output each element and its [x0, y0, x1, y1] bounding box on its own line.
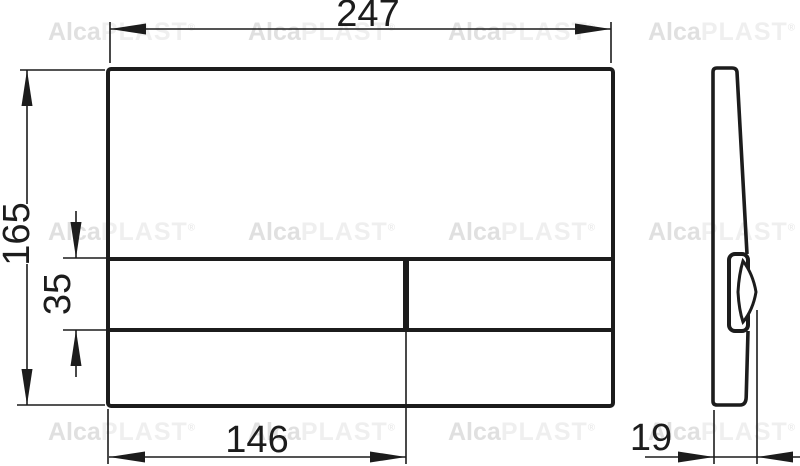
side-button-lens [738, 261, 756, 322]
arrowhead-down [71, 222, 82, 258]
arrowhead-bottom [22, 369, 33, 405]
dimension-drawing: 247 165 35 146 [0, 0, 800, 466]
arrowhead-left [109, 452, 145, 463]
dimension-value-button-width: 146 [225, 419, 288, 461]
arrowhead-inward-right [757, 452, 793, 463]
arrowhead-right [575, 24, 611, 35]
arrowhead-inward-left [678, 452, 714, 463]
dimension-button-width: 146 [108, 332, 406, 464]
technical-drawing-canvas: AlcaPLAST® AlcaPLAST® AlcaPLAST® AlcaPLA… [0, 0, 800, 466]
flush-plate-front-view [108, 69, 613, 406]
dimension-value-overall-width: 247 [336, 0, 399, 35]
side-profile-body [713, 68, 748, 405]
dimension-overall-height: 165 [0, 70, 105, 405]
plate-outline [108, 69, 613, 406]
arrowhead-up [71, 330, 82, 366]
dimension-overall-width: 247 [110, 0, 611, 63]
dimension-value-overall-height: 165 [0, 202, 38, 265]
arrowhead-right [370, 452, 406, 463]
arrowhead-left [110, 24, 146, 35]
flush-plate-side-view [713, 68, 756, 405]
dimension-depth: 19 [630, 310, 800, 464]
arrowhead-top [22, 70, 33, 106]
dimension-button-strip-height: 35 [37, 211, 106, 377]
dimension-value-button-strip-height: 35 [37, 273, 79, 315]
dimension-value-depth: 19 [630, 417, 672, 459]
